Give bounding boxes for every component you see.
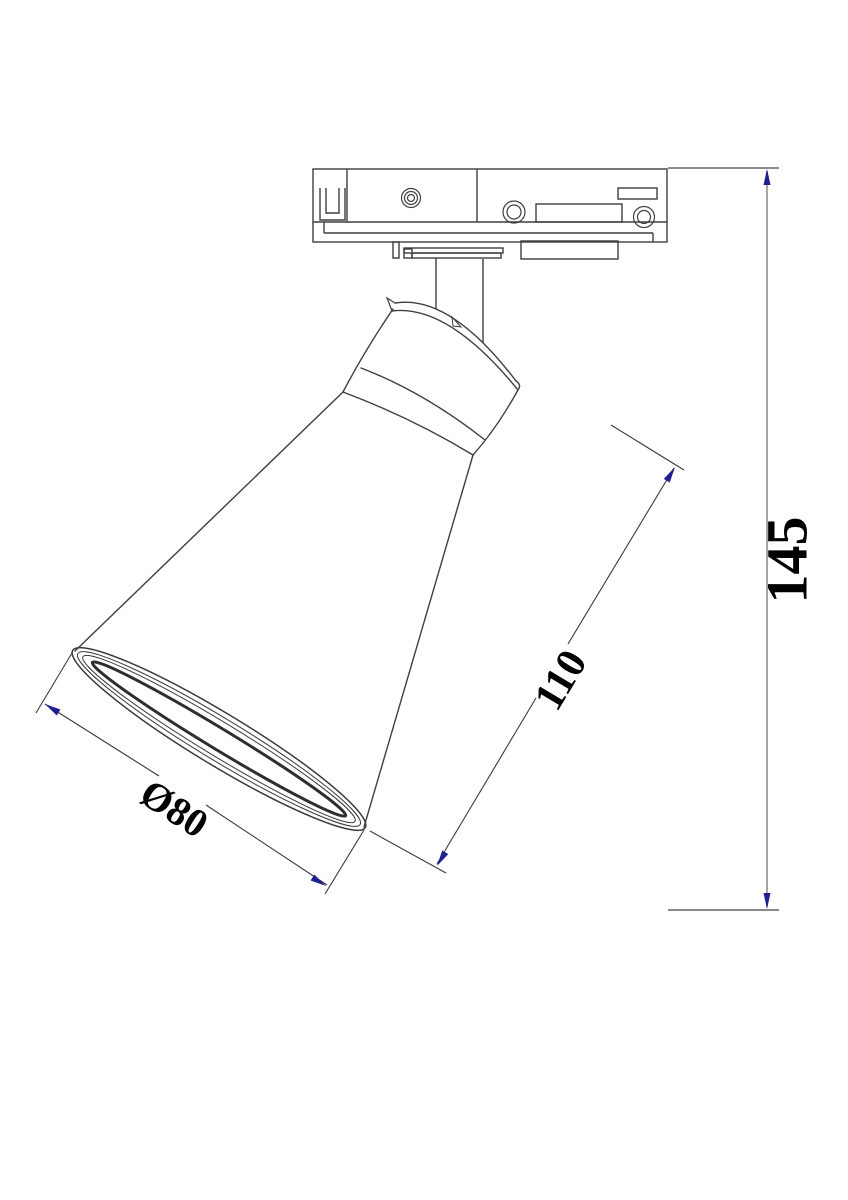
dim-label-height: 145 (754, 517, 819, 604)
dim-arrow-icon (434, 850, 448, 867)
swivel-plate-lower (412, 253, 501, 258)
neck-left-edge (343, 309, 393, 392)
dim-line-segment (45, 704, 159, 776)
adapter-slot (536, 204, 622, 222)
ext-line (370, 831, 446, 873)
dimension-opening-diameter: Ø80 (36, 653, 364, 894)
bracket-post (393, 242, 399, 258)
screw-boss-icon (402, 189, 421, 208)
track-adapter (313, 169, 667, 259)
rim-mid-ellipse (67, 636, 371, 843)
dim-arrow-icon (43, 701, 60, 715)
adapter-body (313, 169, 667, 242)
shade-opening (59, 628, 378, 850)
ext-line (611, 425, 684, 470)
adapter-window (618, 188, 657, 199)
dim-line-segment (206, 805, 327, 885)
mounting-stem (436, 258, 483, 343)
cone-left-edge (75, 392, 343, 651)
ext-line (36, 653, 72, 713)
contact-clip-outer (320, 188, 345, 220)
dim-label-length: 110 (526, 642, 597, 718)
rim-shadow-ellipse (87, 653, 351, 824)
drawing-sheet: Ø80 110 145 (0, 0, 848, 1200)
contact-clip-inner (326, 188, 339, 213)
dim-arrow-icon (764, 169, 771, 185)
dimension-body-length: 110 (370, 425, 684, 873)
swivel-plate-upper (404, 248, 503, 253)
dim-arrow-icon (764, 893, 771, 909)
dimension-overall-height: 145 (668, 168, 819, 910)
cone-right-edge (364, 455, 473, 827)
cap-bottom-edge (392, 310, 518, 390)
dim-line-segment (437, 698, 536, 864)
dim-line-segment (568, 468, 674, 644)
cap-top-edge (395, 302, 516, 381)
pivot-screw-icon (503, 201, 525, 223)
driver-box (521, 241, 618, 259)
neck-right-edge (473, 390, 518, 455)
lamp-head (75, 298, 520, 827)
dim-label-diameter: Ø80 (132, 770, 216, 846)
cap-left-tab (387, 298, 395, 311)
lock-knob-icon (634, 207, 655, 228)
dim-arrow-icon (311, 875, 328, 889)
dim-arrow-icon (664, 465, 678, 482)
neck-band-upper (361, 368, 485, 440)
ext-line (325, 830, 364, 894)
neck-band-lower (343, 392, 473, 455)
technical-drawing-canvas: Ø80 110 145 (0, 0, 848, 1200)
